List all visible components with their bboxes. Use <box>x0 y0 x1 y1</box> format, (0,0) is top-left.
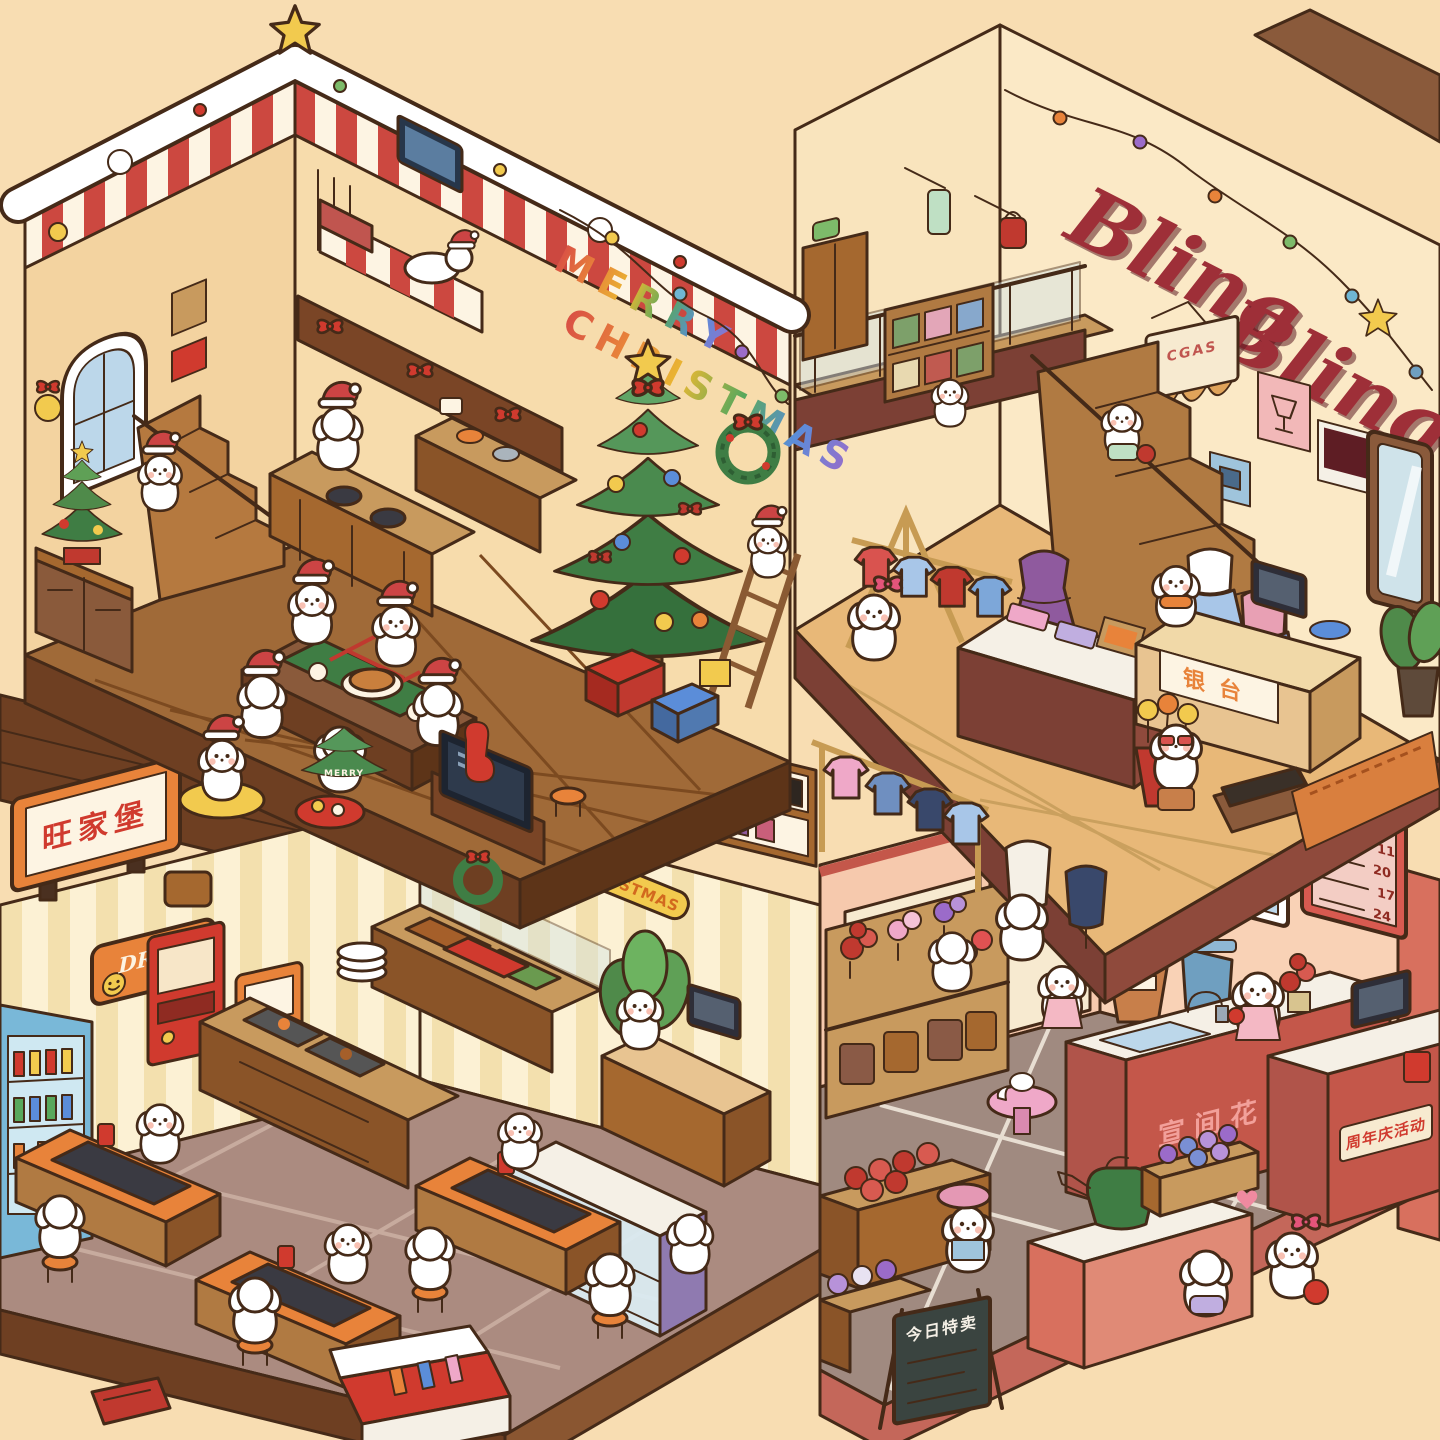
puppy-beret[interactable] <box>938 1184 997 1272</box>
store-clerk-puppy[interactable] <box>1150 566 1203 626</box>
puppy-clerk-flower[interactable] <box>1228 973 1287 1040</box>
mezzanine-puppy[interactable] <box>929 380 970 427</box>
cookie-tree-text: MERRY <box>324 769 364 779</box>
scene: 旺家堡 MARRY CHRISTMAS DRINK <box>0 0 1440 1440</box>
puppy-walking[interactable] <box>1177 1251 1234 1316</box>
isometric-rooms-illustration: 旺家堡 MARRY CHRISTMAS DRINK <box>0 0 1440 1440</box>
floor-mirror[interactable] <box>1368 430 1432 617</box>
